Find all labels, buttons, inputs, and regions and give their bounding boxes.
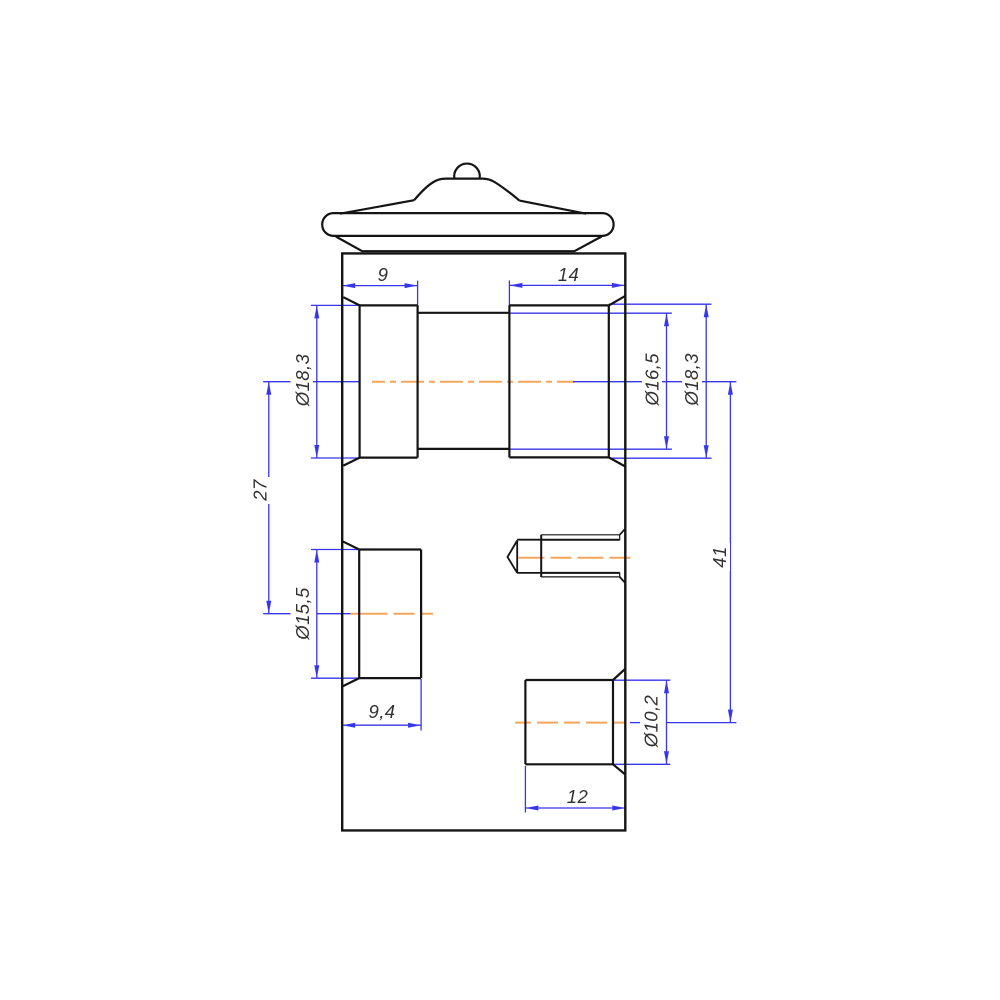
svg-text:Ø18,3: Ø18,3 xyxy=(292,353,313,407)
svg-text:14: 14 xyxy=(558,264,579,285)
svg-text:Ø18,3: Ø18,3 xyxy=(681,353,702,407)
svg-text:12: 12 xyxy=(567,786,589,807)
svg-text:9: 9 xyxy=(378,264,389,285)
svg-text:Ø10,2: Ø10,2 xyxy=(641,694,662,748)
svg-text:27: 27 xyxy=(250,479,271,502)
svg-text:9,4: 9,4 xyxy=(369,701,396,722)
svg-text:Ø15,5: Ø15,5 xyxy=(292,587,313,641)
svg-text:Ø16,5: Ø16,5 xyxy=(641,353,662,407)
svg-text:41: 41 xyxy=(709,546,730,567)
